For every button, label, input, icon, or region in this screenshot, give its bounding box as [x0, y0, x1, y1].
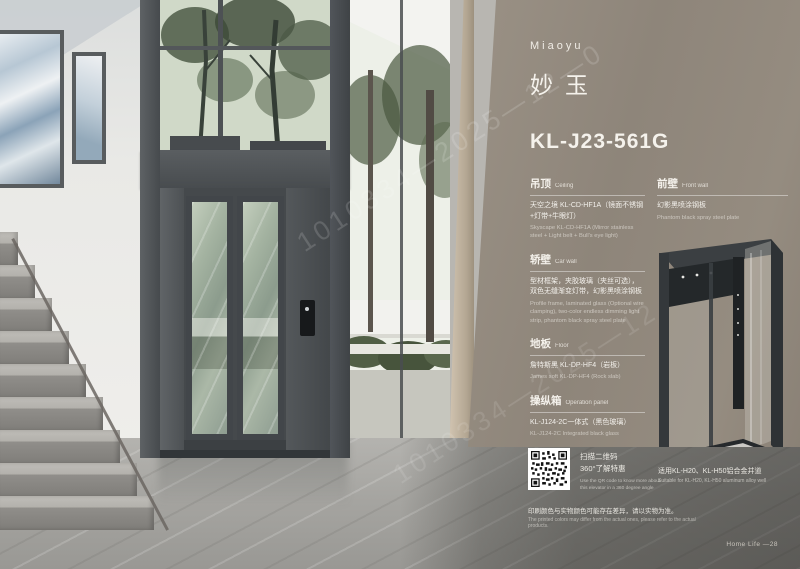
- call-button-panel: [300, 300, 315, 336]
- disclaimer-cn: 印刷颜色与实物颜色可能存在差异，请以实物为准。: [528, 505, 763, 515]
- door-sill: [160, 450, 330, 458]
- qr-caption-en: Use the QR code to know more about this …: [580, 478, 666, 492]
- elevator-header-beam: [140, 150, 350, 188]
- spec-detail-en: KL-J124-2C Integrated black glass: [530, 430, 645, 438]
- spec-detail-cn: 詹特斯黑 KL-DP-HF4（岩板）: [530, 361, 645, 372]
- shaft-column-left: [140, 0, 160, 458]
- spec-panel: Miaoyu 妙玉 KL-J23-561G 吊顶Ceiling 天空之境 KL-…: [452, 0, 800, 447]
- spec-section-ceiling: 吊顶Ceiling 天空之境 KL-CD-HF1A（镜面不锈钢+灯带+牛眼灯） …: [530, 176, 645, 241]
- spec-title-cn: 操纵箱: [530, 393, 562, 408]
- spec-detail-en: Skyscape KL-CD-HF1A (Mirror stainless st…: [530, 224, 645, 241]
- color-disclaimer: 印刷颜色与实物颜色可能存在差异，请以实物为准。 The printed colo…: [528, 505, 763, 529]
- suitable-en: Suitable for KL-H20, KL-H50 aluminum all…: [658, 478, 792, 484]
- sunlit-wall-edge: [448, 0, 474, 452]
- glass-door-panel-left: [186, 196, 233, 440]
- shaft-column-right: [330, 0, 350, 458]
- stair-step: [0, 430, 120, 464]
- stair-step: [0, 232, 18, 266]
- stair-step: [0, 298, 52, 332]
- glass-door-panel-right: [237, 196, 284, 440]
- qr-code-graphic: [531, 451, 567, 487]
- door-jamb-left: [160, 188, 184, 456]
- divider: [530, 195, 645, 196]
- spec-detail-en: Phantom black spray steel plate: [657, 214, 788, 222]
- trees-through-glass: [160, 0, 330, 150]
- wall-art-large: [0, 30, 64, 188]
- qr-caption-cn-line2: 360°了解特惠: [580, 463, 670, 475]
- elevator-cabin-3d-render: [653, 233, 788, 483]
- spec-section-floor: 地板Floor 詹特斯黑 KL-DP-HF4（岩板） James soft KL…: [530, 336, 645, 382]
- spec-title-cn: 地板: [530, 336, 551, 351]
- stair-step: [0, 496, 154, 530]
- transom-mullion-horizontal: [160, 46, 330, 50]
- spec-title-en: Car wall: [555, 259, 577, 265]
- shaft-glass-transom: [160, 0, 330, 150]
- catalog-page: Miaoyu 妙玉 KL-J23-561G 吊顶Ceiling 天空之境 KL-…: [0, 0, 800, 569]
- model-number: KL-J23-561G: [530, 130, 788, 154]
- wall-art-small: [72, 52, 106, 164]
- transom-mullion-vertical: [218, 0, 223, 150]
- spec-title-en: Front wall: [682, 183, 708, 189]
- stair-step: [0, 397, 103, 431]
- spec-detail-en: James soft KL-DP-HF4 (Rock slab): [530, 373, 645, 381]
- garden-view-window: [350, 0, 450, 452]
- brand-name: Miaoyu: [530, 40, 788, 52]
- page-footer-label: Home Life —28: [726, 541, 778, 548]
- divider: [530, 271, 645, 272]
- spec-title-cn: 前壁: [657, 176, 678, 191]
- header-notch: [170, 136, 240, 150]
- spec-title-en: Ceiling: [555, 183, 573, 189]
- wall-art-canvas: [76, 56, 102, 160]
- stair-step: [0, 331, 69, 365]
- suitable-cn: 适用KL-H20、KL-H50铝合金井道: [658, 466, 792, 476]
- spec-section-front-wall: 前壁Front wall 幻影黑喷涂钢板 Phantom black spray…: [657, 176, 788, 222]
- garden-view-illustration: [350, 0, 450, 452]
- staircase: [0, 232, 154, 532]
- wall-art-canvas: [0, 34, 60, 184]
- spec-detail-cn: 型材框架，夹胶玻璃（夹丝可选），双色无缝渐变灯带，幻影黑喷涂钢板: [530, 277, 645, 298]
- divider: [530, 355, 645, 356]
- spec-title-cn: 吊顶: [530, 176, 551, 191]
- spec-section-car-wall: 轿壁Car wall 型材框架，夹胶玻璃（夹丝可选），双色无缝渐变灯带，幻影黑喷…: [530, 252, 645, 325]
- divider: [530, 412, 645, 413]
- spec-detail-en: Profile frame, laminated glass (Optional…: [530, 300, 645, 325]
- spec-title-cn: 轿壁: [530, 252, 551, 267]
- spec-detail-cn: 幻影黑喷涂钢板: [657, 201, 788, 212]
- spec-detail-cn: 天空之境 KL-CD-HF1A（镜面不锈钢+灯带+牛眼灯）: [530, 201, 645, 222]
- spec-section-operation-panel: 操纵箱Operation panel KL-J124-2C一体式（黑色玻璃） K…: [530, 393, 645, 439]
- divider: [657, 195, 788, 196]
- stair-step: [0, 364, 86, 398]
- elevator-doors: [184, 188, 286, 456]
- header-notch: [250, 141, 326, 150]
- spec-title-en: Floor: [555, 343, 569, 349]
- disclaimer-en: The printed colors may differ from the a…: [528, 517, 698, 529]
- spec-title-en: Operation panel: [566, 400, 609, 406]
- qr-caption-cn-line1: 扫描二维码: [580, 451, 670, 463]
- stair-step: [0, 463, 137, 497]
- spec-detail-cn: KL-J124-2C一体式（黑色玻璃）: [530, 418, 645, 429]
- product-name-cn: 妙玉: [530, 66, 788, 100]
- home-elevator-photo: [140, 0, 350, 458]
- qr-caption: 扫描二维码 360°了解特惠 Use the QR code to know m…: [580, 451, 670, 492]
- suitable-shaft-text: 适用KL-H20、KL-H50铝合金井道 Suitable for KL-H20…: [658, 466, 792, 484]
- qr-code: [528, 448, 570, 490]
